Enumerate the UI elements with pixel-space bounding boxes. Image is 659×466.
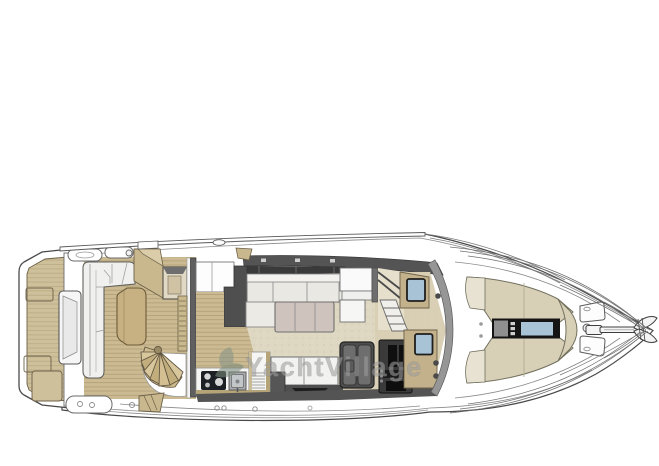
svg-text:YachtVillage: YachtVillage — [245, 352, 423, 382]
